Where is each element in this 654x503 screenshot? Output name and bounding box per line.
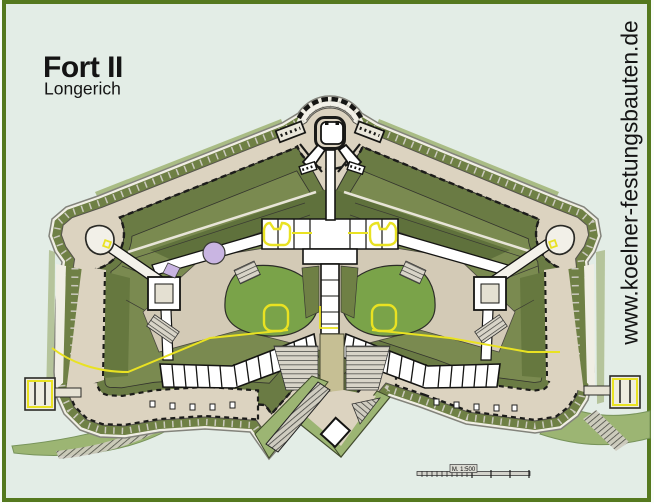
svg-text:M. 1:500: M. 1:500 bbox=[452, 467, 476, 473]
svg-text:www.koelner-festungsbauten.de: www.koelner-festungsbauten.de bbox=[617, 20, 643, 345]
svg-text:Longerich: Longerich bbox=[44, 79, 121, 99]
